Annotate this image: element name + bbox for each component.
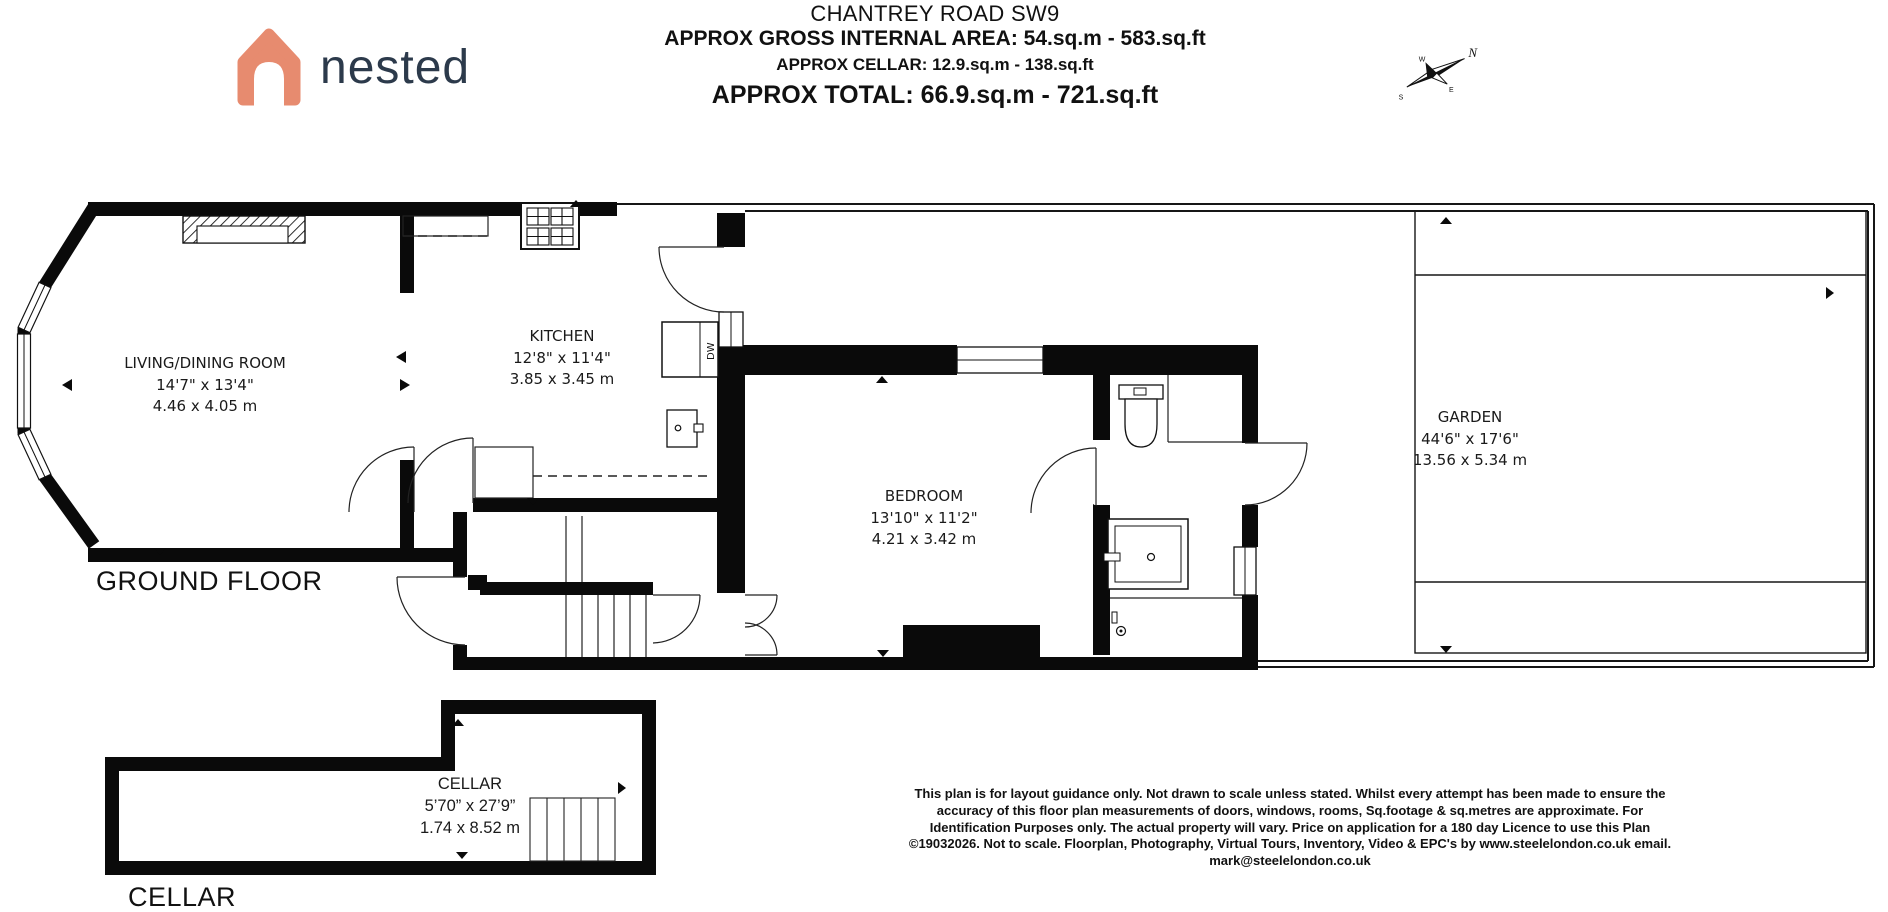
gross-area-text: APPROX GROSS INTERNAL AREA: 54.sq.m - 58… (420, 27, 1450, 51)
basin-icon (1104, 519, 1188, 589)
kitchen-window (719, 312, 743, 347)
fireplace (183, 216, 305, 243)
washing-machine-icon (667, 410, 703, 447)
shower-icon (1112, 612, 1126, 636)
toilet-icon (1119, 385, 1163, 447)
dishwasher-label: DW (706, 342, 717, 360)
stove-icon (521, 203, 579, 249)
total-area-text: APPROX TOTAL: 66.9.sq.m - 721.sq.ft (420, 81, 1450, 110)
cellar-floor-label: CELLAR (128, 882, 236, 912)
page-title: CHANTREY ROAD SW9 (420, 1, 1450, 27)
bedroom-label: BEDROOM 13'10" x 11'2" 4.21 x 3.42 m (774, 486, 1074, 551)
kitchen-label: KITCHEN 12'8" x 11'4" 3.85 x 3.45 m (462, 326, 662, 391)
sink-dishwasher-icon: DW (662, 322, 718, 377)
garden-label: GARDEN 44'6" x 17'6" 13.56 x 5.34 m (1370, 407, 1570, 472)
floorplan-page: CHANTREY ROAD SW9 APPROX GROSS INTERNAL … (0, 0, 1888, 912)
nested-logo-text: nested (320, 40, 470, 95)
bathroom-window (1234, 547, 1256, 595)
cellar-room-label: CELLAR 5’70” x 27’9” 1.74 x 8.52 m (370, 773, 570, 839)
floorplan-drawing: N S W E (0, 0, 1888, 912)
nested-logo-house-icon (243, 34, 295, 106)
bedroom-window (957, 347, 1043, 373)
disclaimer-text: This plan is for layout guidance only. N… (905, 786, 1675, 870)
compass-north: N (1467, 45, 1478, 60)
ground-floor-label: GROUND FLOOR (96, 566, 323, 597)
living-room-label: LIVING/DINING ROOM 14'7" x 13'4" 4.46 x … (55, 353, 355, 418)
cellar-area-text: APPROX CELLAR: 12.9.sq.m - 138.sq.ft (420, 55, 1450, 75)
